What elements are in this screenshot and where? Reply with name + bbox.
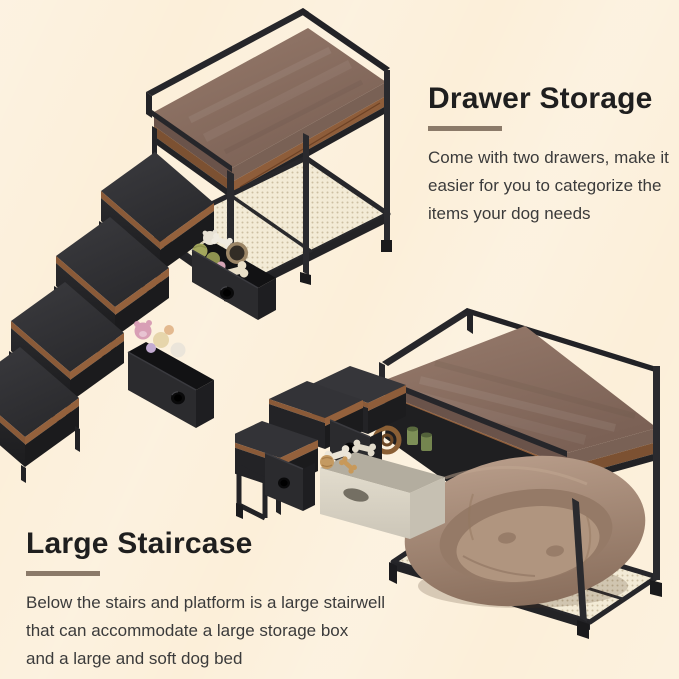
large-staircase-section: Large Staircase Below the stairs and pla… [26,528,385,673]
heading-underline [428,126,502,131]
open-drawer-plush-toys [128,320,214,428]
drawer-grommet [171,392,185,405]
frame-post-right [650,366,662,597]
section-heading-drawer-storage: Drawer Storage [428,83,669,115]
description-line: items your dog needs [428,200,669,228]
staircase [0,152,215,483]
drawer-storage-section: Drawer Storage Come with two drawers, ma… [428,83,669,228]
heading-underline [26,571,100,576]
section-description: Below the stairs and platform is a large… [26,589,385,673]
section-heading-large-staircase: Large Staircase [26,528,385,560]
drawer-grommet [220,287,234,300]
description-line: Come with two drawers, make it [428,144,669,172]
section-description: Come with two drawers, make it easier fo… [428,144,669,228]
description-line: easier for you to categorize the [428,172,669,200]
description-line: that can accommodate a large storage box [26,617,385,645]
description-line: Below the stairs and platform is a large… [26,589,385,617]
description-line: and a large and soft dog bed [26,645,385,673]
